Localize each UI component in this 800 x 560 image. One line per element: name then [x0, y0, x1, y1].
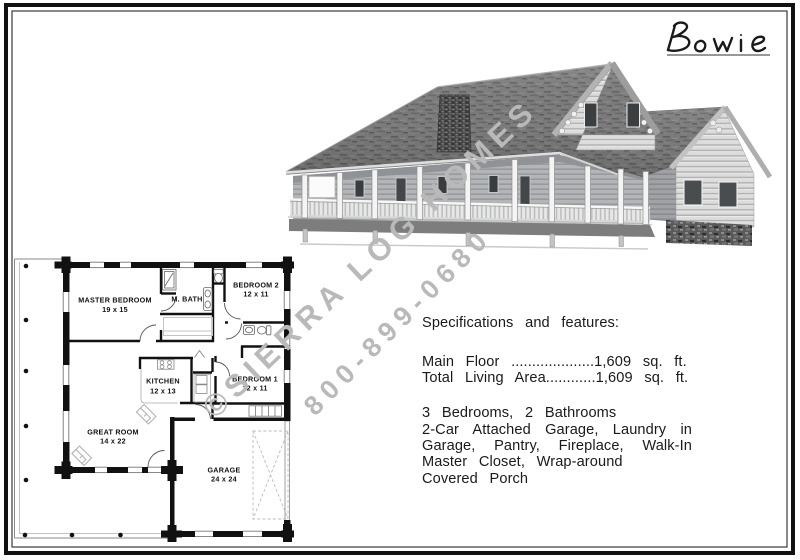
svg-text:14 x 22: 14 x 22: [100, 437, 126, 446]
svg-text:24 x 24: 24 x 24: [211, 475, 237, 484]
svg-text:GREAT ROOM: GREAT ROOM: [87, 428, 138, 437]
svg-text:BEDROOM 2: BEDROOM 2: [233, 281, 279, 290]
svg-text:KITCHEN: KITCHEN: [146, 377, 180, 386]
svg-text:M. BATH: M. BATH: [171, 295, 202, 304]
svg-text:12 x 13: 12 x 13: [150, 387, 176, 396]
svg-text:GARAGE: GARAGE: [207, 466, 240, 475]
svg-text:BEDROOM 1: BEDROOM 1: [232, 375, 278, 384]
svg-text:MASTER BEDROOM: MASTER BEDROOM: [78, 296, 151, 305]
svg-text:12 x 11: 12 x 11: [243, 290, 268, 299]
svg-text:19 x 15: 19 x 15: [102, 305, 128, 314]
svg-text:12 x 11: 12 x 11: [242, 384, 267, 393]
